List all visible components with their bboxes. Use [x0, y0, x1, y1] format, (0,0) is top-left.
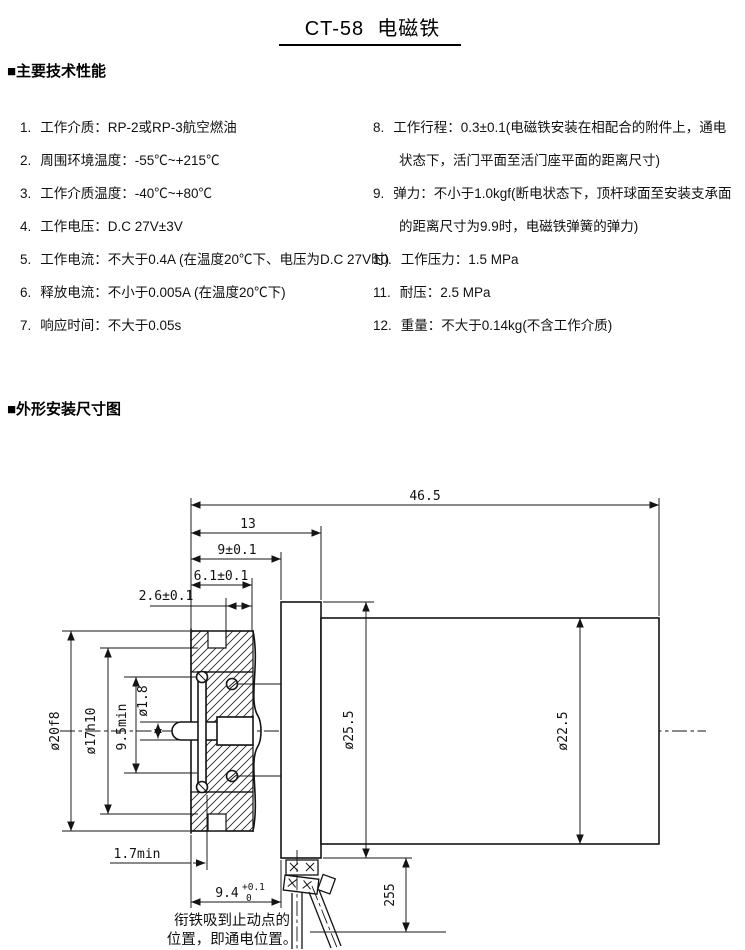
dim-dia25-5-label: ø25.5 [342, 710, 357, 749]
dim-wire-255-label: 255 [383, 883, 398, 906]
spec-item-8-number: 8. [373, 111, 384, 144]
dim-9-4-tol-lower-label: 0 [246, 893, 252, 904]
wire-sleeve-1 [286, 860, 318, 875]
dim-9-label: 9±0.1 [217, 543, 256, 558]
screw-top [197, 672, 208, 683]
armature-plate [198, 672, 206, 792]
spec-item-2-number: 2. [20, 144, 31, 177]
page-title: CT-58 电磁铁 [0, 12, 745, 41]
spec-item-9-text: 弹力：不小于1.0kgf(断电状态下，顶杆球面至安装支承面 [393, 177, 731, 210]
spec-item-6: 6.释放电流：不小于0.005A (在温度20℃下) [20, 276, 372, 309]
title-underline [279, 44, 461, 46]
spec-item-9: 9.弹力：不小于1.0kgf(断电状态下，顶杆球面至安装支承面 [373, 177, 745, 210]
solenoid-body [321, 618, 659, 844]
spec-item-3-number: 3. [20, 177, 31, 210]
spec-item-12-text: 重量：不大于0.14kg(不含工作介质) [401, 309, 613, 342]
wire-sleeve-3 [318, 874, 336, 893]
dim-9-4-label: 9.4 [215, 886, 239, 901]
screw-bottom [197, 782, 208, 793]
spec-item-6-number: 6. [20, 276, 31, 309]
drawing-heading: ■外形安装尺寸图 [7, 398, 121, 419]
note-line-1: 衔铁吸到止动点的 [174, 912, 290, 929]
dim-9-5-label: 9.5min [115, 704, 130, 751]
spec-item-2-text: 周围环境温度：-55℃~+215℃ [40, 144, 219, 177]
spec-item-10: 10.工作压力：1.5 MPa [373, 243, 745, 276]
spec-item-4-text: 工作电压：D.C 27V±3V [40, 210, 182, 243]
spec-item-8-text-2: 状态下，活门平面至活门座平面的距离尺寸) [399, 144, 660, 177]
spec-item-11-text: 耐压：2.5 MPa [400, 276, 491, 309]
spec-item-12-number: 12. [373, 309, 392, 342]
spec-item-7-number: 7. [20, 309, 31, 342]
spec-item-4: 4.工作电压：D.C 27V±3V [20, 210, 372, 243]
dim-1-7-label: 1.7min [114, 847, 161, 862]
spec-item-1: 1.工作介质：RP-2或RP-3航空燃油 [20, 111, 372, 144]
spec-item-3-text: 工作介质温度：-40℃~+80℃ [40, 177, 212, 210]
spec-item-5-text: 工作电流：不大于0.4A (在温度20℃下、电压为D.C 27V时) [40, 243, 389, 276]
spec-item-10-number: 10. [373, 243, 392, 276]
dim-dia1-8-label: ø1.8 [136, 685, 151, 716]
push-rod [172, 722, 217, 740]
spec-item-5: 5.工作电流：不大于0.4A (在温度20℃下、电压为D.C 27V时) [20, 243, 372, 276]
spec-item-7: 7.响应时间：不大于0.05s [20, 309, 372, 342]
dimension-drawing: 46.5 13 9±0.1 6.1±0.1 2.6±0.1 1.7min 9.4… [0, 430, 745, 950]
datasheet-page: CT-58 电磁铁 ■主要技术性能 1.工作介质：RP-2或RP-3航空燃油 2… [0, 0, 745, 950]
specs-left-column: 1.工作介质：RP-2或RP-3航空燃油 2.周围环境温度：-55℃~+215℃… [20, 111, 372, 342]
dim-dia20-label: ø20f8 [48, 711, 63, 750]
spec-item-4-number: 4. [20, 210, 31, 243]
spec-item-8-text: 工作行程：0.3±0.1(电磁铁安装在相配合的附件上，通电 [393, 111, 726, 144]
spec-item-7-text: 响应时间：不大于0.05s [40, 309, 181, 342]
spec-item-1-number: 1. [20, 111, 31, 144]
wire-center-line-angled [312, 886, 338, 950]
specs-heading: ■主要技术性能 [7, 60, 106, 81]
spec-item-3: 3.工作介质温度：-40℃~+80℃ [20, 177, 372, 210]
spec-item-9-text-2: 的距离尺寸为9.9时，电磁铁弹簧的弹力) [399, 210, 638, 243]
spec-item-8: 8.工作行程：0.3±0.1(电磁铁安装在相配合的附件上，通电 [373, 111, 745, 144]
dim-9-4-tol-upper-label: +0.1 [242, 882, 265, 893]
dim-dia17-label: ø17h10 [84, 708, 99, 755]
spec-item-2: 2.周围环境温度：-55℃~+215℃ [20, 144, 372, 177]
dim-dia22-5-label: ø22.5 [556, 711, 571, 750]
spec-item-6-text: 释放电流：不小于0.005A (在温度20℃下) [40, 276, 285, 309]
dim-total-length-label: 46.5 [409, 489, 440, 504]
spec-item-5-number: 5. [20, 243, 31, 276]
spec-item-9-line2: 的距离尺寸为9.9时，电磁铁弹簧的弹力) [373, 210, 745, 243]
spec-item-10-text: 工作压力：1.5 MPa [401, 243, 519, 276]
spec-item-8-line2: 状态下，活门平面至活门座平面的距离尺寸) [373, 144, 745, 177]
dim-13-label: 13 [240, 517, 256, 532]
mounting-plate [281, 602, 321, 858]
armature [217, 717, 253, 745]
spec-item-1-text: 工作介质：RP-2或RP-3航空燃油 [40, 111, 237, 144]
spec-item-11: 11.耐压：2.5 MPa [373, 276, 745, 309]
dim-6-1-label: 6.1±0.1 [194, 569, 249, 584]
note-line-2: 位置，即通电位置。 [167, 931, 298, 948]
spec-item-12: 12.重量：不大于0.14kg(不含工作介质) [373, 309, 745, 342]
dim-2-6-label: 2.6±0.1 [139, 589, 194, 604]
wire-sleeve-2 [283, 875, 319, 894]
specs-right-column: 8.工作行程：0.3±0.1(电磁铁安装在相配合的附件上，通电 状态下，活门平面… [373, 111, 745, 342]
spec-item-11-number: 11. [373, 276, 391, 309]
spec-item-9-number: 9. [373, 177, 384, 210]
